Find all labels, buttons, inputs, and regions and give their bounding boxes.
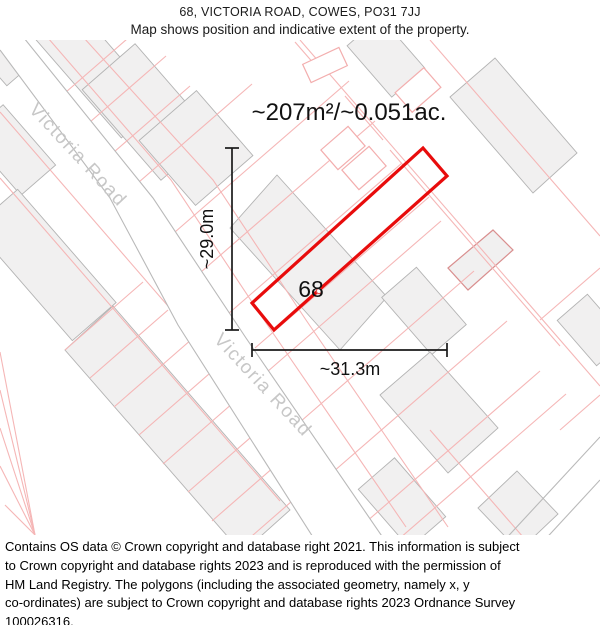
footer-line: 100026316. [5, 613, 600, 625]
footer-line: HM Land Registry. The polygons (includin… [5, 576, 600, 595]
footer-line: Contains OS data © Crown copyright and d… [5, 538, 600, 557]
map-container: Victoria Road Victoria Road ~207m²/~0.05… [0, 40, 600, 535]
page-header: 68, VICTORIA ROAD, COWES, PO31 7JJ Map s… [0, 0, 600, 40]
footer-line: co-ordinates) are subject to Crown copyr… [5, 594, 600, 613]
copyright-footer: Contains OS data © Crown copyright and d… [0, 535, 600, 625]
width-dimension-label: ~31.3m [320, 359, 381, 379]
area-label: ~207m²/~0.051ac. [252, 99, 447, 126]
footer-line: to Crown copyright and database rights 2… [5, 557, 600, 576]
map-canvas: Victoria Road Victoria Road ~207m²/~0.05… [0, 40, 600, 535]
property-map-page: 68, VICTORIA ROAD, COWES, PO31 7JJ Map s… [0, 0, 600, 625]
plot-number-label: 68 [298, 276, 324, 302]
map-description-subtitle: Map shows position and indicative extent… [0, 19, 600, 37]
property-address-title: 68, VICTORIA ROAD, COWES, PO31 7JJ [0, 0, 600, 19]
height-dimension-label: ~29.0m [197, 209, 217, 270]
